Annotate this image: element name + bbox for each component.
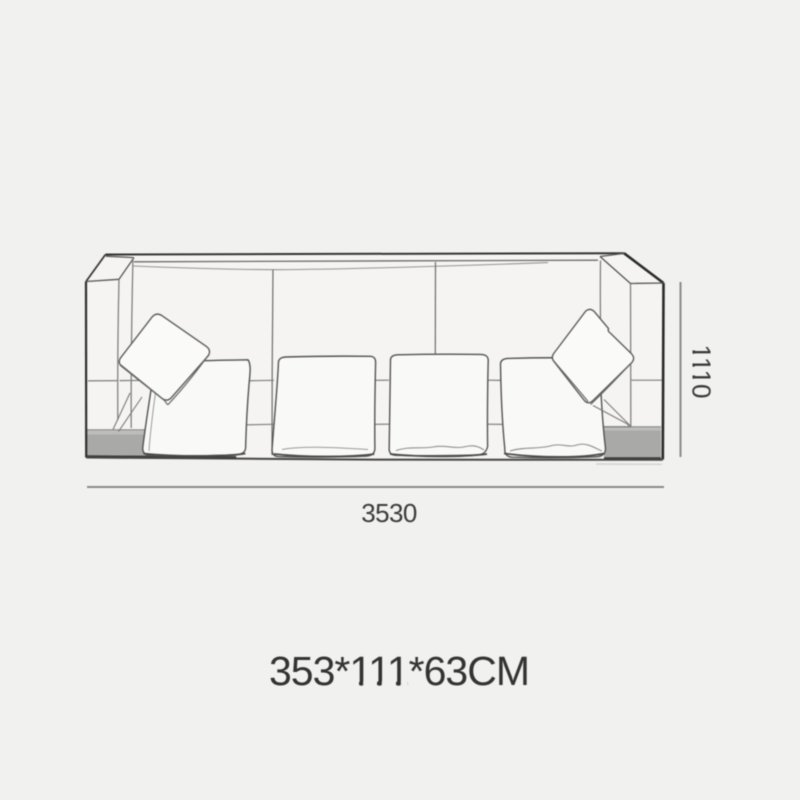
svg-text:353*111*63CM: 353*111*63CM [269,648,529,694]
svg-text:1110: 1110 [687,345,717,399]
svg-text:3530: 3530 [361,498,417,528]
